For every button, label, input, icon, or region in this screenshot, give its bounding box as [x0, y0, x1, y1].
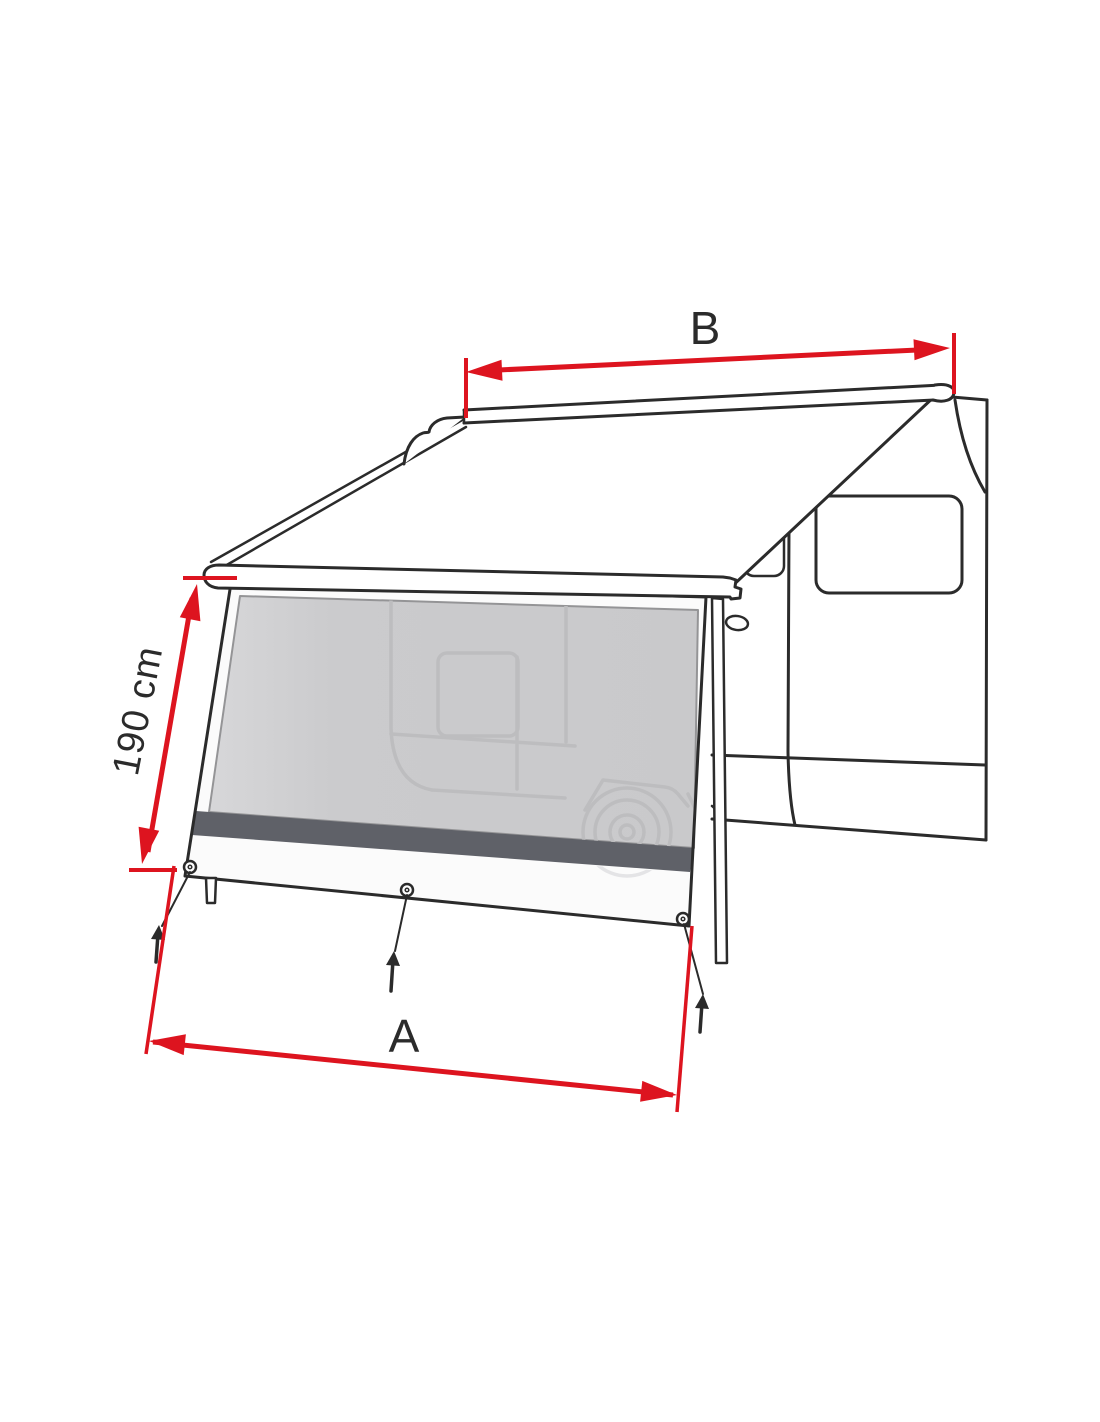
van-c-pillar-curve [955, 400, 985, 492]
awning-fabric [212, 391, 937, 591]
front-panel [184, 583, 706, 926]
dim-a-extension-right [677, 926, 692, 1112]
dim-height-label: 190 cm [105, 643, 171, 779]
van-roof-edge [952, 397, 987, 400]
peg-head-middle [386, 951, 400, 966]
awning-panel-diagram: B 190 cm A [0, 0, 1100, 1422]
van-door-handle [725, 615, 749, 632]
awning-roller-end-cap [933, 385, 954, 402]
dim-b-arrowhead-right [914, 339, 951, 360]
grommet-right-hole [681, 917, 685, 921]
van-side-window [816, 496, 962, 593]
grommet-left-hole [188, 865, 192, 869]
grommet-middle-hole [405, 888, 409, 892]
van-bottom-edge [712, 819, 986, 840]
dim-b-label: B [690, 302, 721, 354]
diagram-canvas: B 190 cm A [0, 0, 1100, 1422]
dim-a-label: A [389, 1010, 420, 1062]
support-leg-right [712, 598, 727, 963]
peg-head-right [695, 994, 709, 1009]
van-door-edge [788, 527, 795, 825]
peg-string-middle [395, 895, 407, 951]
dim-a-arrowhead-right [640, 1081, 677, 1102]
awning [211, 385, 954, 591]
van-rear-edge [986, 400, 987, 840]
dim-b-arrowhead-left [466, 360, 503, 381]
support-leg-left [206, 878, 216, 903]
dim-a-extension-left [146, 866, 174, 1054]
van-beltline [712, 755, 985, 765]
panel-mesh [209, 596, 698, 848]
dim-height-arrowhead-bottom [139, 827, 160, 864]
dim-height-arrowhead-top [180, 584, 201, 621]
